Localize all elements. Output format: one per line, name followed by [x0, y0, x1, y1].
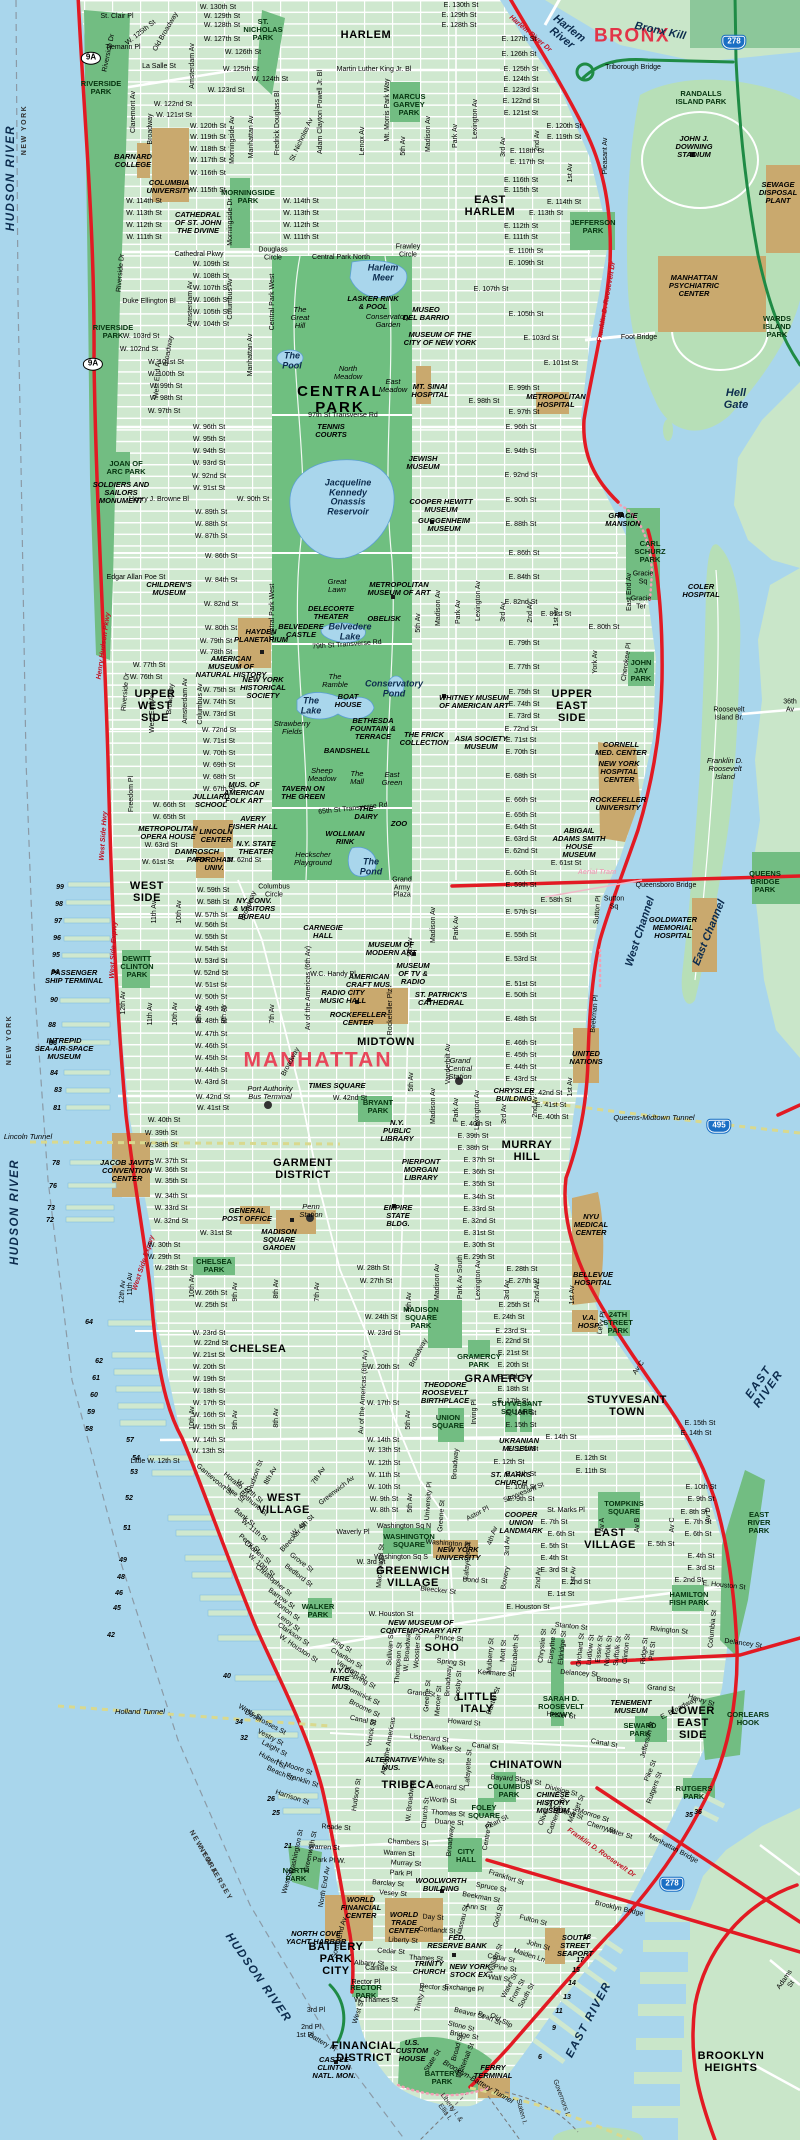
neighborhood-label: BROOKLYN HEIGHTS [698, 2051, 765, 2075]
street-label: Charlton St [329, 1647, 363, 1671]
street-label: Prince St [435, 1634, 464, 1644]
street-label: W. 109th St [193, 261, 229, 269]
street-label: Barclay St [372, 1879, 404, 1889]
street-label: W. 117th St [190, 157, 226, 165]
street-label: Broadway [451, 1448, 461, 1480]
street-label: Beaver St [453, 2007, 485, 2022]
street-label: Laight St [260, 1739, 288, 1759]
street-label: 7th Av [269, 1004, 277, 1023]
street-label: Greenwich Av [318, 1475, 357, 1507]
landmark-label: AMERICAN CRAFT MUS. [346, 973, 392, 989]
street-label: Mulberry St [486, 1638, 496, 1674]
landmark-label: NORTH COVE YACHT HARBOR [286, 1930, 346, 1946]
street-label: E. 10th St [506, 1484, 537, 1492]
street-label: E. 71st St [506, 737, 536, 745]
landmark-label: THEODORE ROOSEVELT BIRTHPLACE [421, 1381, 469, 1405]
street-label: Cathedral Pkwy [174, 251, 223, 259]
street-label: Grand St [407, 1689, 436, 1699]
street-label: W. 97th St [148, 408, 180, 416]
street-label: 5th Av [400, 136, 408, 155]
landmark-label: TAVERN ON THE GREEN [281, 785, 325, 801]
pier-number: 9 [552, 2025, 556, 2033]
street-label: E. 79th St [509, 640, 540, 648]
street-label: Frawley Circle [396, 243, 421, 258]
street-label: E. 62nd St [505, 848, 538, 856]
park-label: RIVERSIDE PARK [93, 324, 133, 340]
street-label: E. 116th St [504, 177, 538, 185]
street-label: Canal St [349, 1715, 377, 1728]
street-label: Oliver St [537, 1799, 554, 1827]
street-label: 8th Av [263, 1466, 279, 1487]
street-label: W. 112th St [283, 222, 319, 230]
street-label: W. 101st St [148, 359, 184, 367]
street-label: W. 55th St [195, 934, 227, 942]
street-label: White St [417, 1756, 444, 1766]
street-label: W. 91st St [193, 485, 225, 493]
street-label: Lispenard St [409, 1733, 449, 1745]
street-label: E. 53rd St [505, 956, 536, 964]
street-label: 1st Pl [296, 2032, 314, 2040]
street-label: E. 37th St [464, 1157, 495, 1165]
street-label: W. 68th St [203, 774, 235, 782]
street-label: Forsythe St [547, 1628, 558, 1664]
street-label: Cherokee Pl [621, 642, 634, 681]
street-label: 7th Av [310, 1466, 327, 1486]
street-label: Mercer St [434, 1686, 444, 1717]
route-shield: 9A [83, 358, 103, 371]
street-label: Old Broadway [152, 11, 181, 53]
street-label: Gansevoort St [194, 1463, 233, 1498]
street-label: W. 58th St [197, 899, 229, 907]
street-label: 1st Av [567, 1078, 575, 1097]
street-label: Mt. Morris Park Way [384, 78, 392, 141]
street-label: Broadway [166, 683, 176, 715]
pier-number: 17 [576, 1957, 584, 1965]
pier-number: 60 [90, 1392, 98, 1400]
landmark-label: THE FRICK COLLECTION [400, 731, 449, 747]
street-label: W. 88th St [195, 521, 227, 529]
street-label: E. 112th St [504, 223, 538, 231]
street-label: Manhattan Av [247, 334, 255, 377]
landmark-label: NEW YORK HISTORICAL SOCIETY [240, 676, 286, 700]
street-label: W. Houston St [277, 1633, 318, 1664]
street-label: Baxter St [486, 1686, 503, 1716]
landmark-label: THE DAIRY [354, 805, 377, 821]
pier-number: 73 [47, 1205, 55, 1213]
street-label: Washington Sq S [374, 1554, 428, 1562]
street-label: Ridge St [640, 1637, 650, 1665]
landmark-label: Conservatory Garden [366, 313, 411, 329]
street-label: Cedar St [487, 1953, 516, 1965]
street-label: 3rd Av [500, 602, 508, 622]
park-label: ST. NICHOLAS PARK [243, 18, 282, 42]
street-label: W. 130th St [200, 4, 236, 12]
landmark-label: NY CONV. & VISITORS BUREAU [233, 897, 275, 921]
landmark-label: BETHESDA FOUNTAIN & TERRACE [350, 717, 396, 741]
neighborhood-label: WEST SIDE [130, 881, 164, 905]
street-label: Kenmare St [477, 1669, 514, 1679]
street-label: E. 8th St [681, 1509, 708, 1517]
street-label: W. 69th St [203, 762, 235, 770]
park-label: DEWITT CLINTON PARK [120, 955, 153, 979]
landmark-label: COOPER UNION LANDMARK [499, 1511, 542, 1535]
street-label: E. 40th St [461, 1121, 492, 1129]
park-label: RANDALLS ISLAND PARK [676, 90, 727, 106]
street-label: W. 107th St [193, 285, 229, 293]
street-label: Av C [632, 1360, 647, 1377]
landmark-label: ZOO [391, 820, 407, 828]
street-label: E. 82nd St [505, 599, 538, 607]
street-label: W. 128th St [204, 22, 240, 30]
street-label: W. 9th St [370, 1496, 398, 1504]
street-label: King St [329, 1637, 352, 1655]
landmark-label: Grand Central Station [448, 1057, 472, 1081]
landmark-label: CARNEGIE HALL [303, 924, 343, 940]
park-label: CENTRAL PARK [297, 384, 383, 416]
street-label: E. 72nd St [505, 726, 538, 734]
street-label: W. 12th St [368, 1460, 400, 1468]
street-label: E. 81st St [541, 611, 571, 619]
street-label: Broadway [444, 1665, 454, 1697]
street-label: E. Houston St [702, 1580, 746, 1592]
landmark-label: EMPIRE STATE BLDG. [384, 1204, 413, 1228]
street-label: 10th Av [189, 1274, 197, 1297]
street-label: Monroe St [576, 1807, 609, 1824]
street-label: W. 105th St [193, 309, 229, 317]
street-label: Pleasant Av [602, 138, 610, 175]
street-label: W. 10th St [368, 1484, 400, 1492]
street-label: E. 29th St [464, 1254, 495, 1262]
street-label: Worth St [429, 1796, 457, 1805]
street-label: E. 84th St [509, 574, 540, 582]
street-label: W. 111th St [126, 234, 161, 242]
street-label: W. 34th St [155, 1193, 187, 1201]
street-label: E. 2nd St [675, 1577, 704, 1585]
street-label: Manhattan Bridge [647, 1833, 699, 1866]
landmark-label: TRINITY CHURCH [413, 1960, 446, 1976]
street-label: W. 26th St [195, 1290, 227, 1298]
park-label: STUYVESANT SQUARE [492, 1400, 542, 1416]
street-label: Ludlow St [586, 1634, 597, 1665]
street-label: W. 80th St [205, 625, 237, 633]
landmark-label: TIMES SQUARE [308, 1082, 365, 1090]
landmark-label: MUSEUM OF THE CITY OF NEW YORK [404, 331, 477, 347]
street-label: E. 86th St [509, 550, 540, 558]
landmark-label: FERRY TERMINAL [474, 2064, 513, 2080]
street-label: Pearl St [476, 2010, 502, 2027]
street-label: W. 31st St [200, 1230, 232, 1238]
street-label: Broadway [240, 890, 259, 922]
street-label: Battery Pl [307, 2032, 337, 2054]
water-label: The Lake [301, 696, 322, 715]
street-label: Suffolk St [613, 1636, 624, 1666]
street-label: Clarkson St [276, 1622, 310, 1648]
street-label: W. Houston St [369, 1611, 414, 1619]
pier-number: 6 [538, 2054, 542, 2062]
landmark-label: HAYDEN PLANETARIUM [234, 628, 288, 644]
street-label: Columbia St [707, 1610, 718, 1649]
street-label: Pell St [521, 1779, 542, 1788]
landmark-label: Franklin D. Roosevelt Island [707, 757, 743, 781]
street-label: Lexington Av [474, 1090, 482, 1130]
landmark-label: DAMROSCH PARK [175, 848, 219, 864]
street-label: 2nd Av [532, 1096, 540, 1117]
street-label: W. 100th St [148, 371, 184, 379]
street-label: W. 30th St [148, 1242, 180, 1250]
street-label: Grand Army Plaza [392, 877, 411, 900]
street-label: 2nd Av [527, 601, 535, 622]
street-label: W. 28th St [155, 1265, 187, 1273]
park-label: MADISON SQUARE PARK [403, 1306, 438, 1330]
pier-number: 61 [92, 1375, 100, 1383]
street-label: E. 58th St [541, 897, 572, 905]
pier-number: 14 [568, 1980, 576, 1988]
street-label: Morningside Dr [227, 198, 235, 245]
street-label: W. 73rd St [203, 711, 236, 719]
water-label: Hell Gate [724, 388, 748, 412]
street-label: E. 12th St [576, 1455, 607, 1463]
street-label: Pine St [493, 1964, 516, 1975]
pier-number: 57 [126, 1437, 134, 1445]
street-label: Bethune St [237, 1490, 268, 1518]
street-label: St. Marks Pl [547, 1507, 585, 1515]
landmark-label: COLER HOSPITAL [682, 583, 719, 599]
street-label: E. 51st St [506, 981, 536, 989]
street-label: W. 52nd St [194, 970, 228, 978]
street-label: Desbrosses St [243, 1709, 287, 1737]
street-label: Broome St [347, 1698, 380, 1719]
park-label: JEFFERSON PARK [570, 219, 615, 235]
landmark-label: JULLIARD SCHOOL [192, 793, 229, 809]
street-label: University Pl [424, 1481, 434, 1520]
street-label: 11th Av [147, 1003, 155, 1026]
street-label: Park Av [453, 1098, 461, 1122]
street-label: W. 21st St [193, 1352, 225, 1360]
park-label: CITY HALL [456, 1848, 476, 1864]
street-label: E. 12th St [494, 1459, 525, 1467]
street-label: W. 123rd St [208, 87, 245, 95]
street-label: W. 12th St [234, 1479, 264, 1506]
street-label: E. 10th St [686, 1484, 717, 1492]
street-label: E. 5th St [648, 1541, 675, 1549]
pier-number: 83 [54, 1087, 62, 1095]
pier-number: 81 [53, 1105, 61, 1113]
street-label: W. 44th St [195, 1067, 227, 1075]
street-label: Queensboro Bridge [636, 882, 697, 890]
street-label: Central Park West [269, 584, 277, 641]
street-label: Park Pl W. [312, 1856, 345, 1865]
park-label: RIVERSIDE PARK [81, 80, 121, 96]
park-label: MARCUS GARVEY PARK [393, 93, 426, 117]
street-label: Riverside Dr [121, 672, 132, 711]
neighborhood-label: GRAMERCY [465, 1374, 534, 1386]
street-label: W. 125th St [124, 19, 157, 47]
street-label: Hudson St [247, 1459, 265, 1492]
street-label: Douglass Circle [258, 246, 287, 261]
street-label: E. 31st St [464, 1230, 494, 1238]
street-label: W. 98th St [150, 395, 182, 403]
street-label: 3rd Av [500, 137, 508, 157]
street-label: East End Av [626, 573, 634, 611]
park-label: GRAMERCY PARK [457, 1353, 501, 1369]
street-label: Amsterdam Av [187, 281, 195, 326]
street-label: West St [352, 1999, 367, 2025]
street-label: South St [517, 1982, 536, 2009]
street-label: W. 113th St [126, 210, 162, 218]
street-label: Lexington Av [475, 581, 483, 621]
ferry-label: Staten I. [514, 2098, 528, 2125]
map-labels-layer: BRONXMANHATTANHARLEMEAST HARLEMUPPER WES… [0, 0, 800, 2140]
landmark-label: MADISON SQUARE GARDEN [261, 1228, 296, 1252]
street-label: W. 103rd St [123, 333, 160, 341]
street-label: 2nd Av [535, 1567, 543, 1589]
park-label: UNION SQUARE [432, 1414, 464, 1430]
street-label: E. 9th St [508, 1496, 535, 1504]
pier-number: 98 [55, 901, 63, 909]
street-label: E. 117th St [510, 159, 544, 167]
pier-number: 18 [583, 1934, 591, 1942]
landmark-label: GUGGENHEIM MUSEUM [418, 517, 470, 533]
park-label: RECTOR PARK [350, 1984, 382, 2000]
landmark-label: WORLD TRADE CENTER [389, 1911, 420, 1935]
street-label: Foot Bridge [621, 334, 657, 342]
street-label: W. 124th St [252, 76, 288, 84]
street-label: E. 107th St [474, 286, 509, 294]
street-label: Broadway [147, 113, 155, 144]
street-label: Av C [669, 1517, 677, 1532]
street-label: W. 87th St [195, 533, 227, 541]
street-label: Cortlandt St [418, 1926, 455, 1936]
street-label: E. 88th St [506, 521, 537, 529]
landmark-label: CASTLE CLINTON NATL. MON. [312, 2056, 355, 2080]
water-label: HUDSON RIVER [5, 125, 17, 231]
landmark-label: INTREPID SEA-AIR-SPACE MUSEUM [35, 1037, 94, 1061]
street-label: Central Park West [269, 274, 277, 331]
landmark-label: PASSENGER SHIP TERMINAL [45, 969, 103, 985]
street-label: Trinity Pl [414, 1985, 428, 2013]
neighborhood-label: UPPER EAST SIDE [552, 689, 593, 725]
street-label: Water St [500, 1972, 519, 1999]
tunnel-label: Lincoln Tunnel [4, 1133, 52, 1141]
neighborhood-label: LOWER EAST SIDE [671, 1706, 715, 1742]
street-label: Morningside Av [229, 116, 237, 164]
pier-number: 34 [235, 1719, 243, 1727]
landmark-label: OBELISK [367, 615, 400, 623]
landmark-label: SOUTH STREET SEAPORT [557, 1934, 593, 1958]
pier-number: 96 [53, 935, 61, 943]
street-label: Dominick St [344, 1684, 381, 1707]
street-label: Bleecker St [279, 1522, 309, 1554]
street-label: W. 67th St [203, 786, 235, 794]
landmark-label: JOHN J. DOWNING STADIUM [675, 135, 712, 159]
street-label: E. 19th St [498, 1374, 529, 1382]
street-label: W. 4th St [290, 1514, 316, 1539]
street-label: E. 125th St [504, 66, 539, 74]
landmark-label: AMERICAN MUSEUM OF NATURAL HISTORY [196, 655, 267, 679]
landmark-label: JACOB JAVITS CONVENTION CENTER [100, 1159, 154, 1183]
street-label: E. 30th St [464, 1242, 495, 1250]
street-label: MacDougal St [376, 1544, 387, 1588]
street-label: Cedar St [377, 1948, 405, 1957]
state-boundary-label: NEW YORK [6, 1015, 14, 1065]
street-label: Sutton Pl [593, 896, 603, 925]
street-label: 10th Av [172, 1002, 180, 1025]
street-label: Greene St [437, 1500, 447, 1532]
landmark-label: LINCOLN CENTER [199, 828, 232, 844]
landmark-label: Penn Station [299, 1203, 322, 1219]
street-label: Harrison St [274, 1789, 310, 1807]
street-label: William St [487, 1943, 505, 1975]
street-label: W. 24th St [365, 1314, 397, 1322]
street-label: Pike St [643, 1759, 658, 1782]
neighborhood-label: TRIBECA [381, 1780, 434, 1792]
park-label: JOAN OF ARC PARK [106, 460, 145, 476]
street-label: W. 112th St [126, 222, 162, 230]
street-label: Riverside Dr [101, 33, 116, 72]
street-label: Columbus Av [197, 683, 205, 724]
street-label: E. 11th St [506, 1471, 536, 1479]
street-label: Henry St [687, 1693, 715, 1709]
street-label: W. 62nd St [227, 857, 261, 865]
street-label: Carlisle St [365, 1965, 397, 1974]
landmark-label: TENNIS COURTS [315, 423, 347, 439]
landmark-label: Great Lawn [328, 578, 347, 594]
park-label: TOMPKINS SQUARE [604, 1500, 643, 1516]
street-label: W. 102nd St [120, 346, 158, 354]
street-label: E. 7th St [685, 1519, 712, 1527]
landmark-label: METROPOLITAN OPERA HOUSE [138, 825, 197, 841]
street-label: Varick St [366, 1719, 378, 1747]
street-label: West St [281, 1869, 295, 1895]
landmark-label: NEW YORK STOCK EX. [449, 1963, 490, 1979]
landmark-label: Port Authority Bus Terminal [247, 1085, 292, 1101]
street-label: Lexington Av [475, 1260, 483, 1300]
neighborhood-label: HARLEM [341, 30, 392, 42]
street-label: Old Slip [488, 2012, 513, 2030]
street-label: W. 66th St [153, 802, 185, 810]
landmark-label: CHRYSLER BUILDING [493, 1087, 534, 1103]
park-label: BATTERY PARK [425, 2070, 460, 2086]
street-label: Sutton Sq [604, 895, 624, 910]
ferry-label: Governors I. [551, 2079, 571, 2118]
street-label: Claremont Av [130, 91, 138, 133]
street-label: W. 29th St [148, 1254, 180, 1262]
state-boundary-label: NEW YORK [187, 1829, 219, 1876]
street-label: Jane St [222, 1483, 245, 1504]
street-label: E. 101st St [544, 360, 578, 368]
street-label: Rector Pl [352, 1979, 381, 1987]
street-label: Delancey St [724, 1638, 762, 1651]
street-label: E. 96th St [506, 424, 537, 432]
street-label: W. 20th St [193, 1364, 225, 1372]
street-label: Bleecker St [420, 1585, 456, 1596]
tram-label: Aerial Tram [578, 869, 616, 877]
park-label: EAST RIVER PARK [748, 1511, 771, 1535]
street-label: W. 126th St [225, 49, 261, 57]
street-label: E. 126th St [502, 51, 537, 59]
street-label: Madison Av [434, 1264, 442, 1300]
street-label: W. 15th St [193, 1424, 225, 1432]
street-label: Crosby St [454, 1670, 464, 1701]
street-label: W. 23rd St [193, 1330, 226, 1338]
street-label: Park Av [455, 600, 463, 624]
street-label: Fulton St [518, 1914, 547, 1928]
street-label: Church St [421, 1797, 432, 1829]
landmark-label: SOLDIERS AND SAILORS MONUMENT [93, 481, 149, 505]
street-label: Broadway [408, 1337, 429, 1368]
street-label: E. 70th St [506, 749, 537, 757]
street-label: W. 79th St [200, 638, 232, 646]
